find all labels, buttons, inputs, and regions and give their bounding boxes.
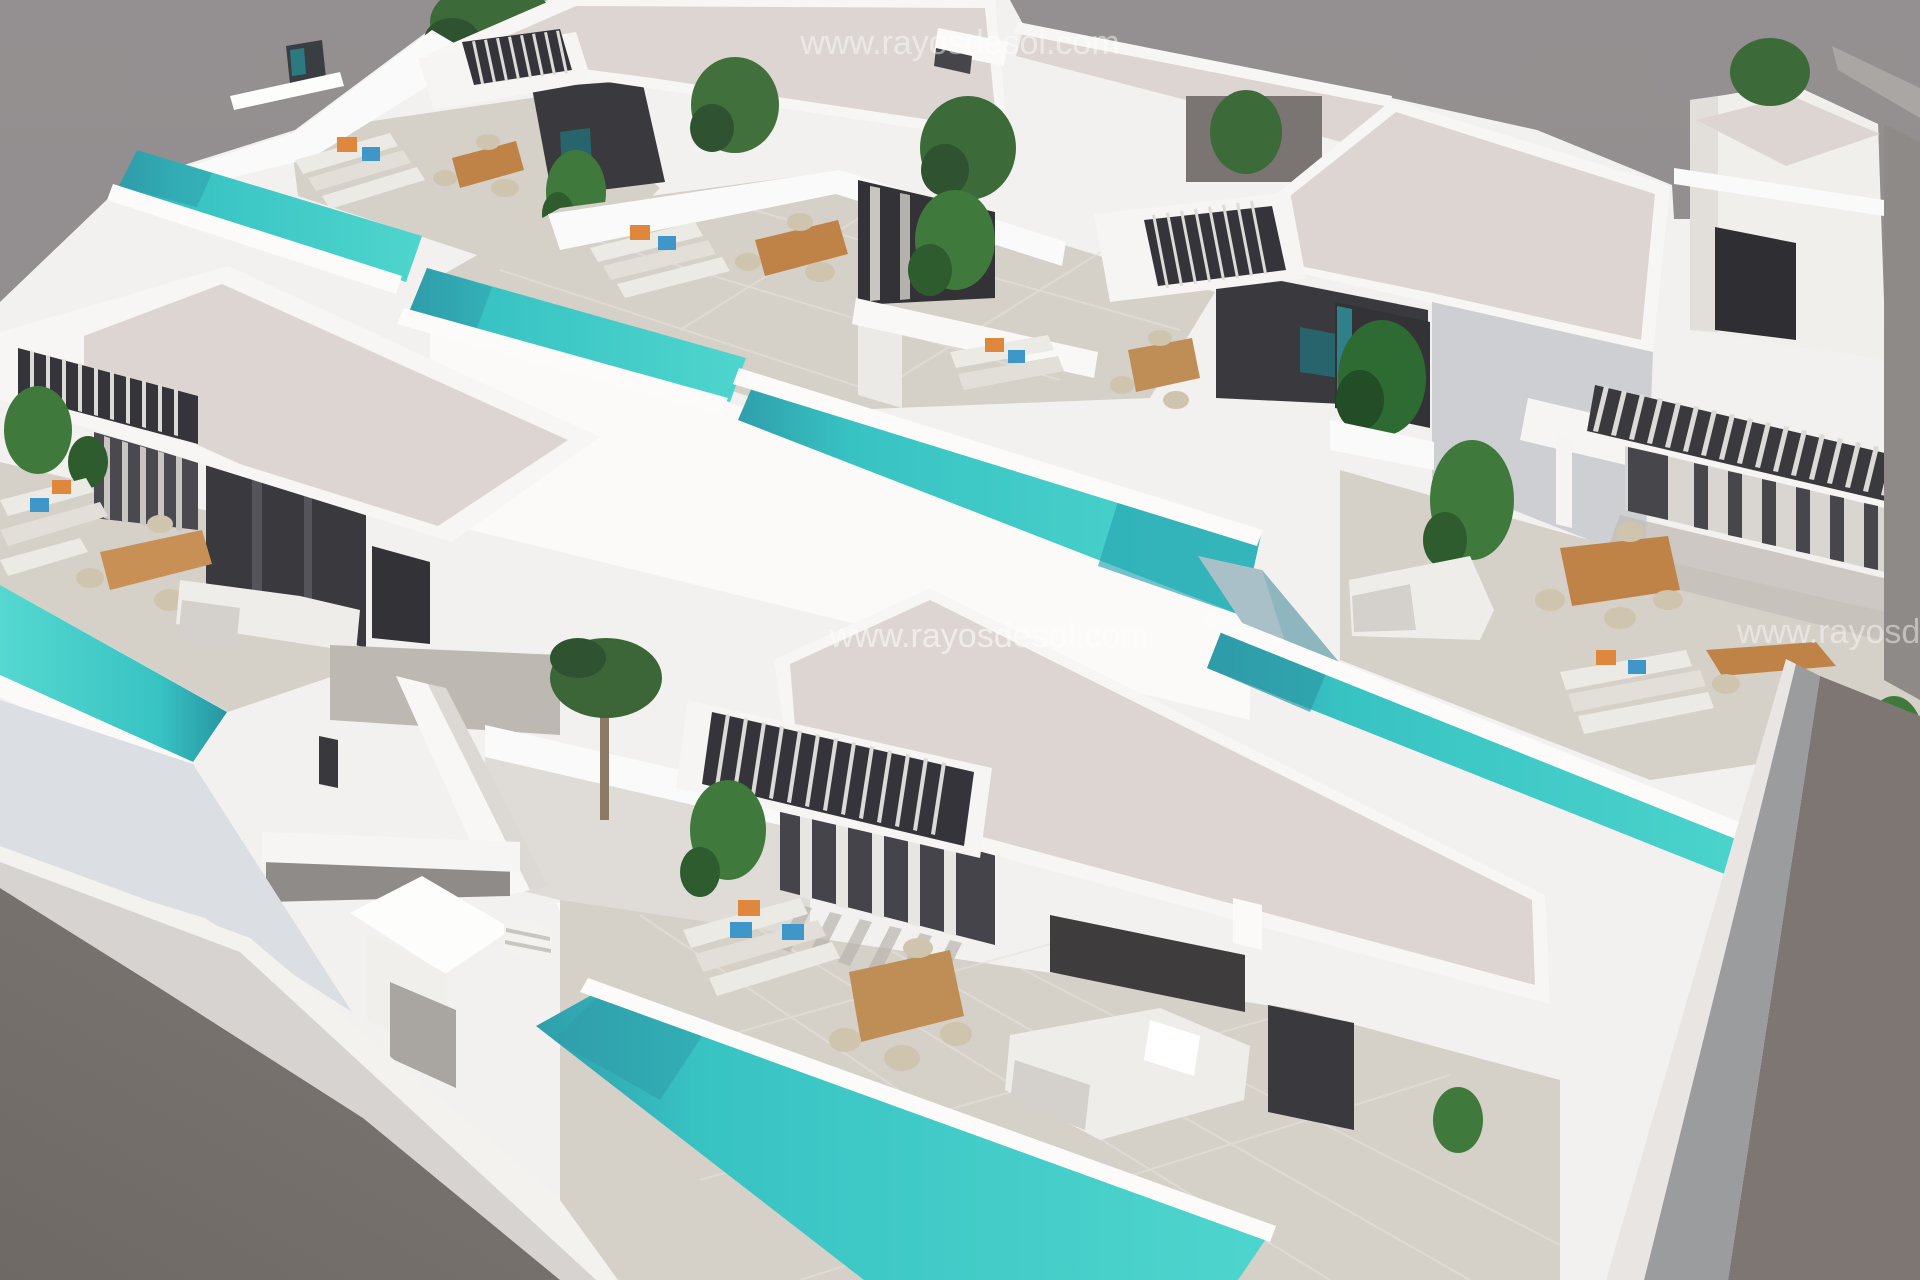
svg-text:www.rayosdesol.com: www.rayosdesol.com (1736, 613, 1920, 651)
svg-text:www.rayosdesol.com: www.rayosdesol.com (828, 617, 1148, 655)
svg-text:www.rayosdesol.com: www.rayosdesol.com (799, 24, 1119, 62)
